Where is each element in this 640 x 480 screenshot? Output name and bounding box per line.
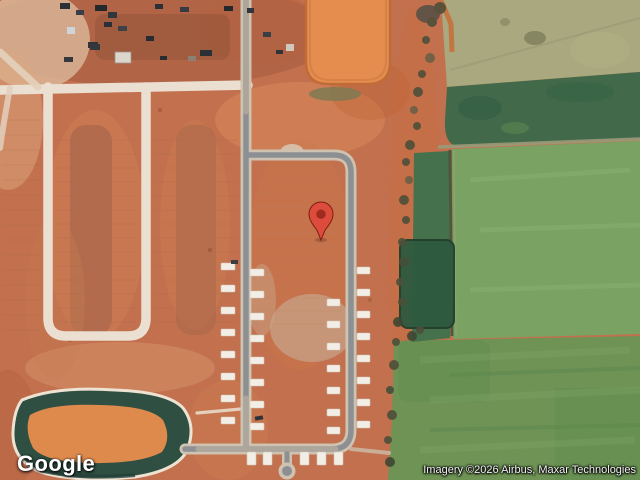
satellite-imagery — [0, 0, 640, 480]
retention-pond — [306, 0, 390, 84]
satellite-map[interactable]: Google Imagery ©2026 Airbus, Maxar Techn… — [0, 0, 640, 480]
map-attribution: Imagery ©2026 Airbus, Maxar Technologies — [423, 464, 636, 476]
google-logo[interactable]: Google — [17, 451, 95, 477]
